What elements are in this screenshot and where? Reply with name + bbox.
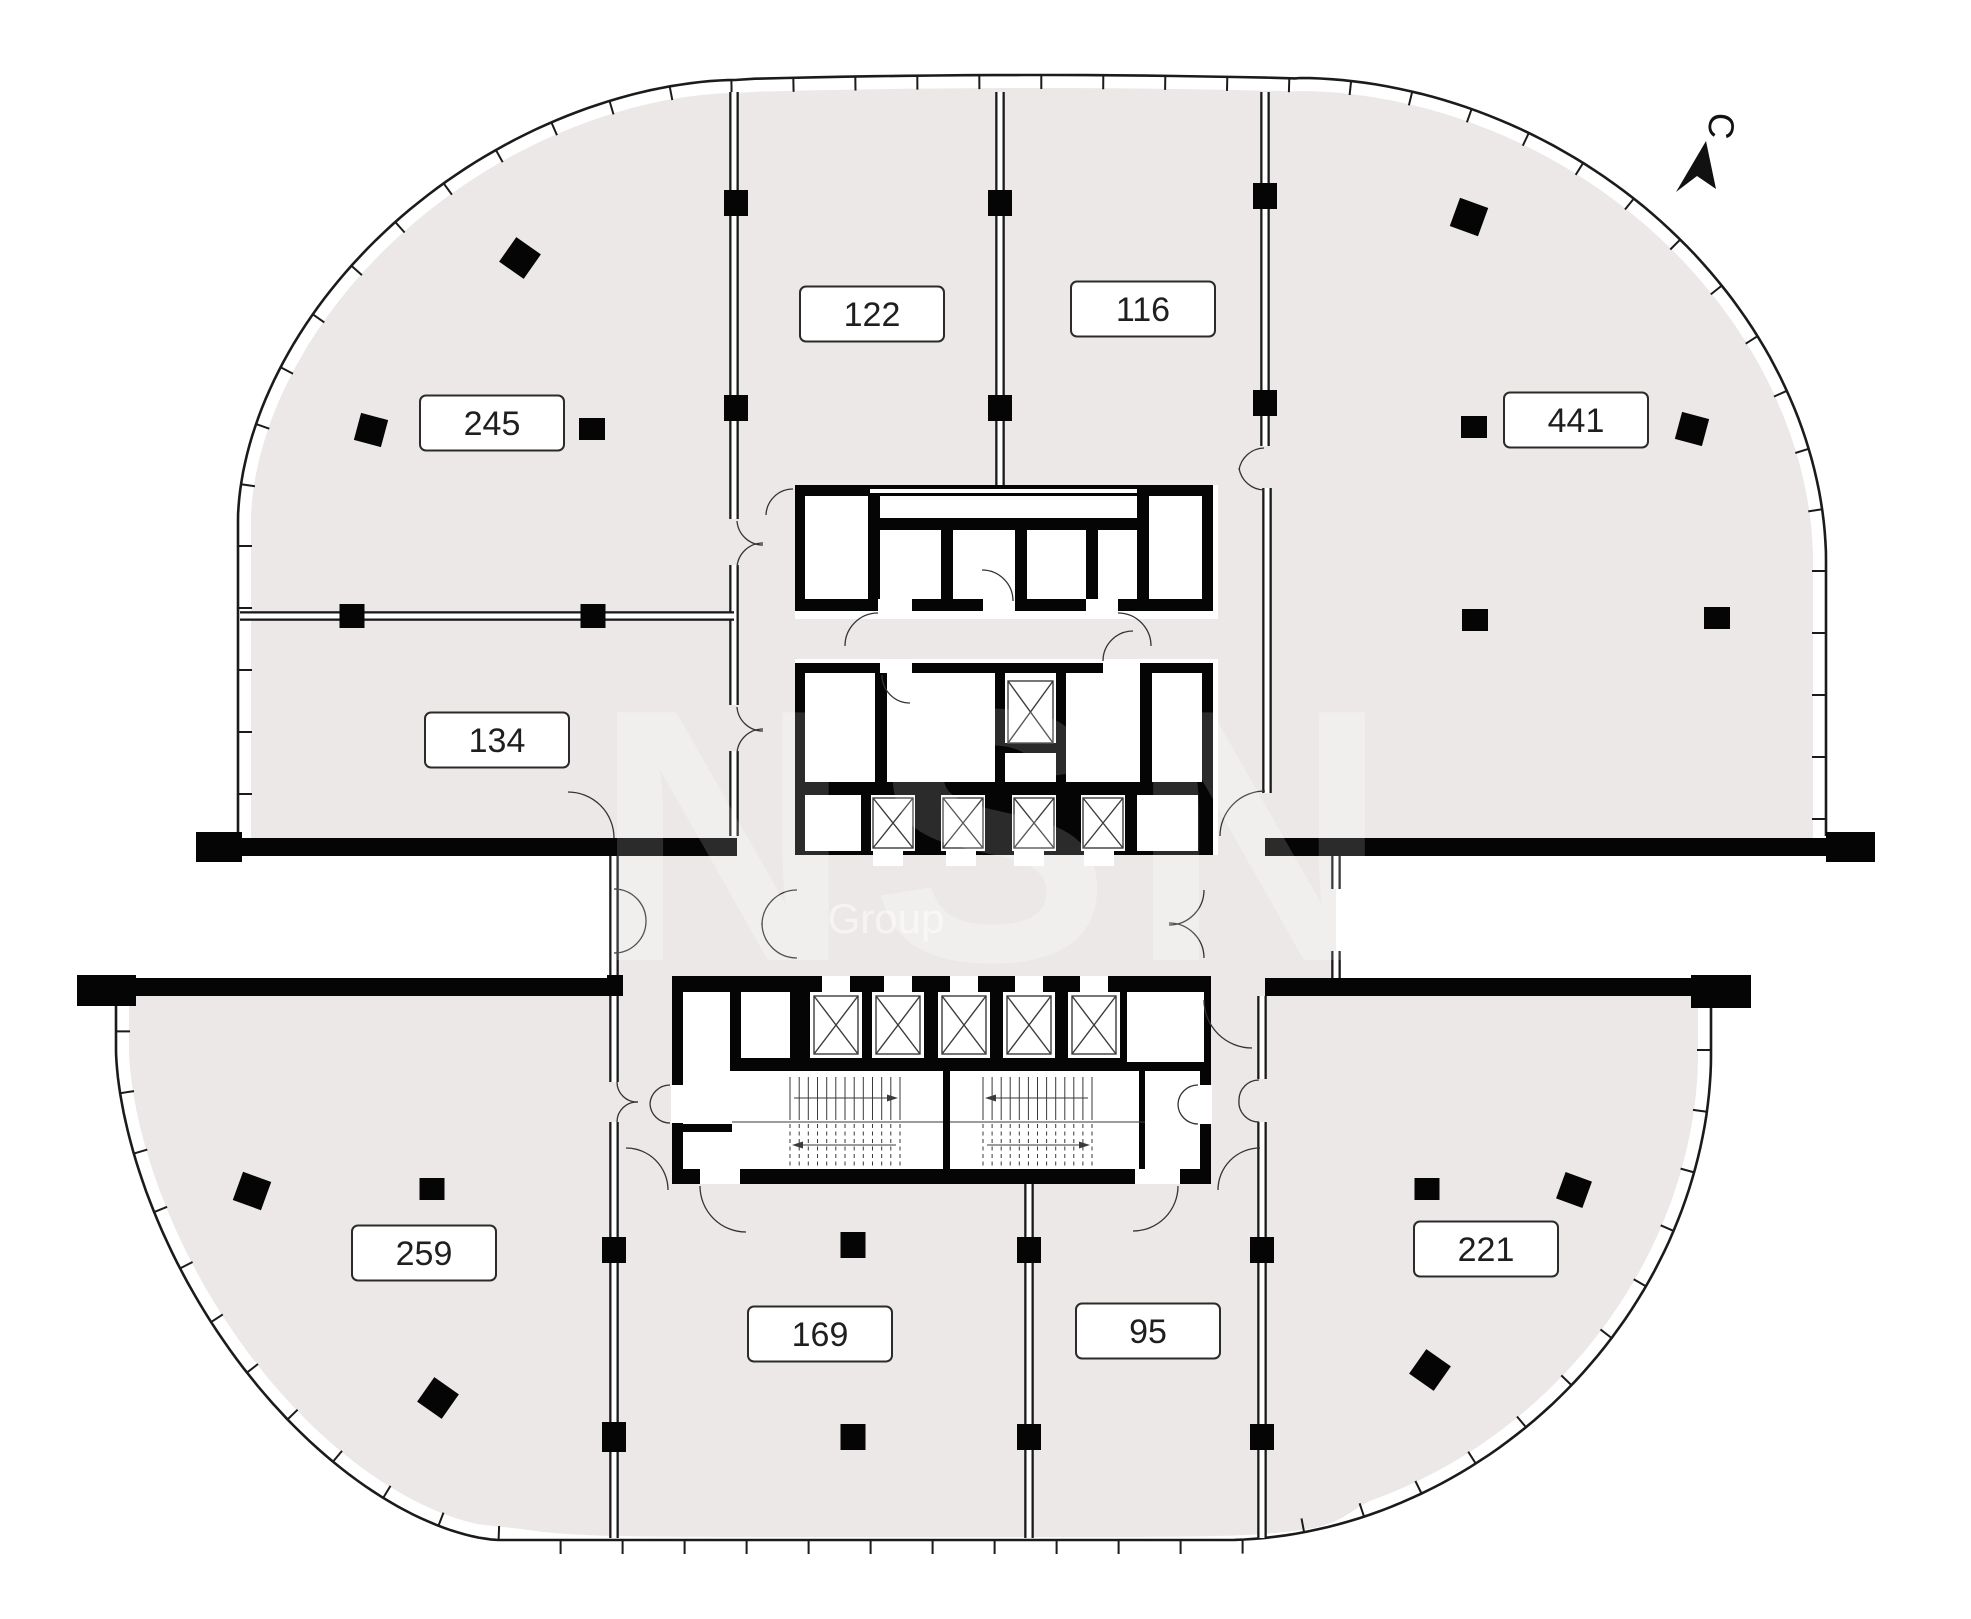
svg-text:259: 259	[396, 1235, 453, 1273]
svg-text:116: 116	[1116, 291, 1170, 329]
svg-text:221: 221	[1458, 1231, 1515, 1269]
svg-text:245: 245	[464, 405, 521, 443]
svg-text:NSN: NSN	[593, 635, 1407, 1037]
svg-text:95: 95	[1129, 1313, 1167, 1351]
svg-text:134: 134	[469, 722, 526, 760]
svg-text:441: 441	[1548, 402, 1605, 440]
svg-text:122: 122	[844, 296, 901, 334]
svg-text:169: 169	[792, 1316, 849, 1354]
svg-text:C: C	[1700, 111, 1744, 142]
